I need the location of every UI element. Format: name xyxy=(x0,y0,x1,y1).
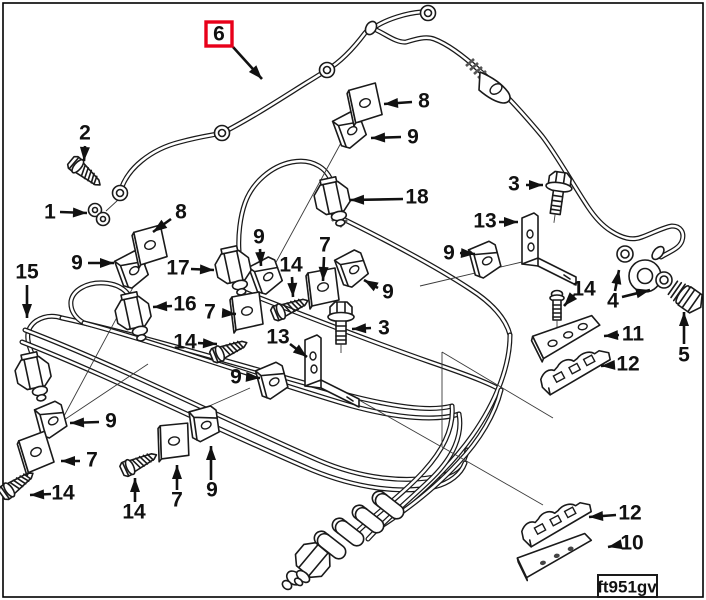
screw-part xyxy=(66,154,105,191)
callout-arrow-10 xyxy=(608,545,618,547)
part-label-14: 14 xyxy=(173,331,197,354)
callout-arrow-4 xyxy=(622,290,650,297)
part-label-1: 1 xyxy=(44,201,56,224)
callout-arrow-3 xyxy=(352,328,371,329)
plate-part xyxy=(346,83,382,127)
part-label-14: 14 xyxy=(122,501,146,524)
callout-arrow-9 xyxy=(248,377,260,378)
callout-arrow-17 xyxy=(191,269,214,270)
eyelet-part xyxy=(421,6,436,21)
bolt-part xyxy=(541,170,574,224)
part-label-7: 7 xyxy=(171,489,183,512)
callout-arrow-7 xyxy=(323,257,324,281)
part-label-6: 6 xyxy=(213,23,225,46)
callout-arrow-14 xyxy=(30,494,51,495)
callout-arrow-9 xyxy=(371,137,401,138)
part-label-3: 3 xyxy=(508,173,520,196)
parts-diagram-page: 6218915179147891831399167143139141112459… xyxy=(0,0,706,600)
washer-part xyxy=(656,272,672,288)
part-label-11: 11 xyxy=(622,323,645,346)
plate-part xyxy=(131,225,167,269)
part-label-8: 8 xyxy=(175,201,187,224)
part-label-7: 7 xyxy=(86,449,98,472)
figure-stamp: ft951gv xyxy=(597,575,657,597)
part-label-3: 3 xyxy=(378,317,390,340)
part-label-17: 17 xyxy=(166,257,189,280)
part-label-9: 9 xyxy=(407,126,419,149)
part-label-14: 14 xyxy=(572,278,596,301)
part-label-13: 13 xyxy=(266,326,289,349)
grommet-part xyxy=(89,204,110,226)
figure-stamp-text: ft951gv xyxy=(597,578,657,597)
clamp-part xyxy=(189,405,220,442)
pipe-bracket-tab xyxy=(479,72,510,103)
eyelet-part xyxy=(215,126,230,141)
callout-arrow-8 xyxy=(384,102,412,104)
part-label-5: 5 xyxy=(678,344,690,367)
part-label-12: 12 xyxy=(616,353,639,376)
part-label-9: 9 xyxy=(230,366,242,389)
callout-arrow-12 xyxy=(589,515,616,517)
bracket-part xyxy=(522,213,576,285)
part-label-9: 9 xyxy=(443,242,455,265)
clamp-part xyxy=(255,361,290,401)
part-label-12: 12 xyxy=(618,502,641,525)
part-label-2: 2 xyxy=(79,122,91,145)
leader-line xyxy=(106,200,118,211)
part-label-4: 4 xyxy=(607,290,619,313)
part-label-15: 15 xyxy=(15,261,39,284)
callout-arrow-9 xyxy=(260,249,261,266)
part-label-14: 14 xyxy=(51,482,75,505)
washer-part xyxy=(617,246,633,262)
callout-arrow-7 xyxy=(222,313,236,314)
callout-arrow-2 xyxy=(84,146,85,161)
parts-diagram: 6218915179147891831399167143139141112459… xyxy=(0,0,706,600)
part-label-9: 9 xyxy=(253,226,265,249)
nut-part xyxy=(212,244,255,299)
part-label-13: 13 xyxy=(473,210,496,233)
part-label-9: 9 xyxy=(206,479,218,502)
eyelet-part xyxy=(113,186,128,201)
callout-arrow-16 xyxy=(153,306,172,307)
plate-part xyxy=(230,292,263,333)
part-label-14: 14 xyxy=(279,254,303,277)
part-label-7: 7 xyxy=(319,234,331,257)
part-label-9: 9 xyxy=(105,410,117,433)
part-label-9: 9 xyxy=(71,252,83,275)
screw-part xyxy=(119,448,160,479)
callout-arrow-12 xyxy=(601,365,614,366)
clamp-part xyxy=(334,248,371,289)
callout-arrow-6 xyxy=(233,47,262,79)
banjo-bolt xyxy=(667,279,706,317)
callout-arrow-1 xyxy=(60,212,87,213)
part-label-7: 7 xyxy=(204,301,216,324)
callout-arrow-4 xyxy=(615,270,619,291)
part-label-10: 10 xyxy=(620,532,643,555)
part-label-18: 18 xyxy=(405,186,429,209)
callout-arrow-14 xyxy=(292,277,293,297)
part-label-16: 16 xyxy=(173,293,196,316)
eyelet-part xyxy=(320,63,335,78)
nut-part xyxy=(12,350,55,405)
callout-arrow-9 xyxy=(460,253,475,254)
callout-arrow-9 xyxy=(70,422,99,423)
callout-arrow-11 xyxy=(604,335,619,336)
plate-part xyxy=(155,421,191,465)
callout-arrow-14 xyxy=(198,343,217,344)
callout-arrow-18 xyxy=(350,199,403,200)
callout-arrow-9 xyxy=(364,280,378,288)
part-label-8: 8 xyxy=(418,90,430,113)
part-label-9: 9 xyxy=(382,281,394,304)
